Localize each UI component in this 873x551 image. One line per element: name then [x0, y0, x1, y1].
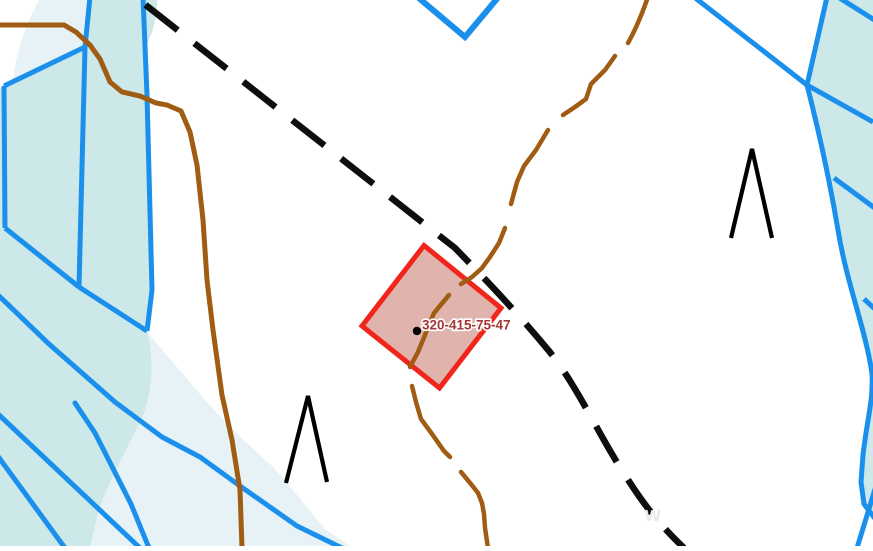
svg-text:w: w — [644, 504, 661, 526]
svg-text:320-415-75-47: 320-415-75-47 — [422, 318, 511, 333]
